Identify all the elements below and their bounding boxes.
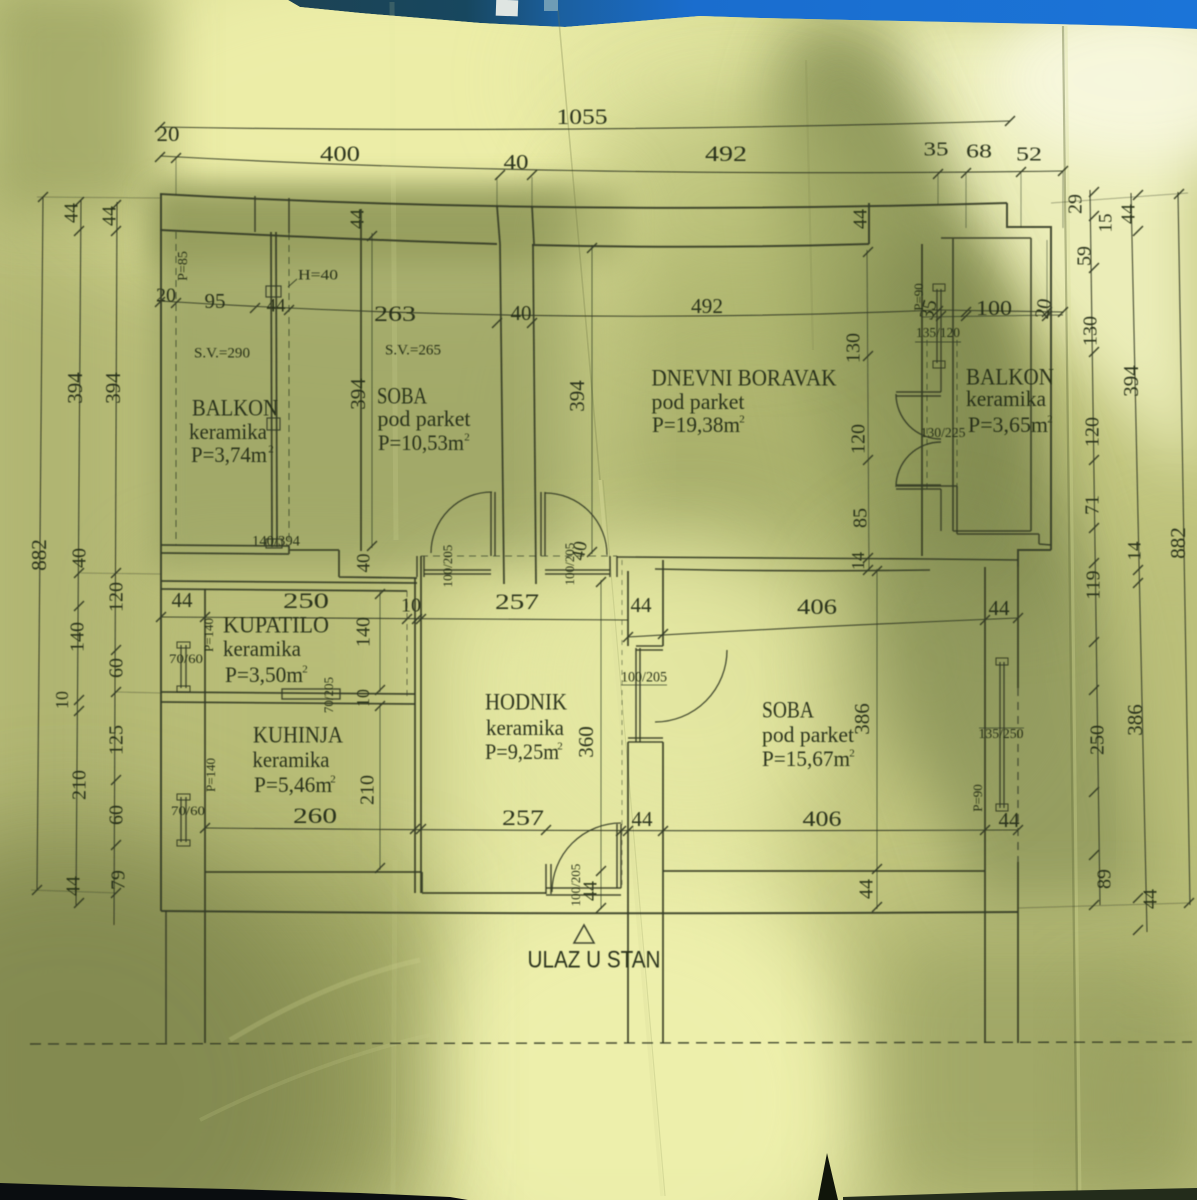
svg-text:P=90: P=90 (970, 784, 985, 812)
svg-text:44: 44 (99, 206, 121, 226)
svg-text:44: 44 (631, 593, 653, 617)
svg-text:250: 250 (283, 588, 329, 613)
svg-text:keramika: keramika (223, 636, 301, 661)
svg-text:2: 2 (330, 774, 336, 786)
svg-text:394: 394 (63, 372, 87, 404)
svg-text:40: 40 (504, 150, 529, 174)
svg-text:15: 15 (1095, 214, 1116, 233)
svg-text:P=9,25m: P=9,25m (485, 739, 559, 764)
svg-text:135/120: 135/120 (916, 326, 960, 341)
svg-text:360: 360 (574, 726, 598, 758)
svg-text:14: 14 (1124, 541, 1145, 561)
svg-text:10: 10 (401, 595, 421, 617)
svg-text:29: 29 (1065, 194, 1087, 214)
svg-text:44: 44 (856, 879, 878, 899)
svg-text:140: 140 (353, 617, 375, 647)
svg-text:100/205: 100/205 (440, 545, 455, 588)
svg-text:260: 260 (293, 803, 337, 828)
svg-text:44: 44 (61, 203, 83, 223)
svg-text:20: 20 (156, 285, 176, 307)
svg-text:40: 40 (568, 540, 592, 562)
svg-text:140/394: 140/394 (252, 533, 300, 549)
svg-text:44: 44 (1140, 889, 1162, 909)
svg-text:68: 68 (966, 141, 992, 163)
svg-text:394: 394 (1119, 365, 1143, 397)
svg-text:125: 125 (106, 725, 128, 755)
svg-text:406: 406 (797, 594, 837, 619)
svg-text:S.V.=290: S.V.=290 (194, 345, 250, 361)
svg-text:44: 44 (1118, 204, 1140, 224)
svg-text:492: 492 (691, 294, 723, 318)
svg-text:P=3,50m: P=3,50m (225, 662, 303, 687)
svg-text:P=10,53m: P=10,53m (378, 430, 464, 455)
svg-text:2: 2 (557, 741, 563, 753)
svg-text:1055: 1055 (557, 104, 608, 129)
svg-text:100/205: 100/205 (621, 669, 667, 685)
svg-text:120: 120 (106, 582, 128, 612)
svg-text:P=15,67m: P=15,67m (762, 746, 850, 771)
svg-text:2: 2 (268, 444, 274, 456)
svg-text:210: 210 (357, 775, 379, 805)
svg-text:100/205: 100/205 (568, 864, 583, 907)
svg-text:95: 95 (205, 289, 226, 313)
svg-text:pod parket: pod parket (762, 722, 854, 747)
svg-text:P=140: P=140 (201, 618, 216, 652)
svg-text:keramika: keramika (486, 715, 564, 740)
svg-text:70/60: 70/60 (171, 803, 205, 818)
svg-text:52: 52 (1016, 144, 1042, 166)
svg-text:2: 2 (849, 748, 855, 760)
svg-text:492: 492 (705, 141, 747, 166)
svg-text:HODNIK: HODNIK (485, 689, 567, 714)
svg-text:44: 44 (347, 209, 369, 229)
svg-text:89: 89 (1094, 869, 1116, 889)
svg-text:44: 44 (63, 876, 85, 896)
svg-text:P=3,74m: P=3,74m (191, 442, 267, 467)
svg-text:70/60: 70/60 (169, 651, 203, 666)
svg-text:2: 2 (1047, 414, 1053, 426)
svg-text:P=140: P=140 (203, 758, 218, 792)
svg-text:40: 40 (511, 301, 532, 325)
svg-text:386: 386 (850, 703, 874, 735)
svg-text:2: 2 (302, 664, 308, 676)
svg-text:10: 10 (353, 689, 373, 707)
svg-text:59: 59 (1074, 246, 1096, 266)
svg-text:P=90: P=90 (911, 283, 926, 311)
svg-text:keramika: keramika (966, 386, 1046, 411)
svg-text:S.V.=265: S.V.=265 (385, 342, 441, 358)
svg-text:120: 120 (848, 424, 870, 454)
svg-text:394: 394 (101, 372, 125, 404)
svg-text:394: 394 (346, 378, 370, 410)
svg-text:60: 60 (106, 805, 128, 825)
svg-text:135/250: 135/250 (979, 727, 1024, 742)
svg-text:KUHINJA: KUHINJA (253, 722, 343, 747)
svg-text:130: 130 (843, 333, 865, 363)
svg-text:70/205: 70/205 (321, 677, 336, 713)
svg-text:10: 10 (52, 691, 72, 709)
svg-text:P=5,46m: P=5,46m (254, 772, 332, 797)
svg-text:40: 40 (353, 554, 374, 573)
svg-text:14: 14 (848, 552, 868, 570)
svg-text:257: 257 (495, 589, 539, 614)
svg-text:keramika: keramika (189, 419, 267, 444)
svg-text:400: 400 (320, 141, 360, 166)
svg-text:SOBA: SOBA (762, 697, 814, 722)
svg-text:KUPATILO: KUPATILO (223, 612, 329, 637)
svg-text:79: 79 (108, 870, 130, 890)
svg-text:keramika: keramika (253, 747, 330, 772)
svg-text:120: 120 (1082, 417, 1104, 447)
svg-text:85: 85 (850, 508, 872, 528)
svg-text:386: 386 (1123, 704, 1147, 736)
svg-text:SOBA: SOBA (377, 383, 427, 408)
svg-text:71: 71 (1082, 495, 1104, 515)
svg-text:P=3,65m: P=3,65m (968, 412, 1048, 437)
svg-text:44: 44 (989, 596, 1011, 620)
svg-text:130: 130 (1080, 316, 1102, 346)
svg-text:H=40: H=40 (298, 267, 338, 283)
svg-text:44: 44 (632, 807, 654, 831)
svg-text:20: 20 (157, 122, 180, 146)
svg-text:P=85: P=85 (176, 251, 191, 281)
svg-text:20: 20 (1031, 297, 1056, 321)
svg-text:263: 263 (374, 301, 416, 326)
svg-text:60: 60 (106, 658, 128, 678)
svg-text:882: 882 (27, 539, 51, 571)
svg-text:257: 257 (502, 805, 544, 830)
svg-text:P=19,38m: P=19,38m (652, 412, 740, 437)
svg-text:210: 210 (69, 770, 91, 800)
svg-text:406: 406 (803, 806, 842, 831)
svg-text:40: 40 (69, 548, 91, 568)
svg-text:394: 394 (565, 380, 589, 412)
svg-text:44: 44 (172, 588, 194, 612)
svg-text:44: 44 (850, 209, 872, 229)
svg-text:DNEVNI BORAVAK: DNEVNI BORAVAK (652, 365, 837, 390)
svg-text:140: 140 (67, 622, 89, 652)
svg-text:2: 2 (739, 414, 745, 426)
svg-text:119: 119 (1083, 570, 1105, 599)
svg-text:pod parket: pod parket (652, 389, 745, 414)
svg-text:BALKON: BALKON (192, 395, 278, 420)
svg-text:pod parket: pod parket (378, 406, 471, 431)
svg-text:882: 882 (1166, 527, 1190, 559)
svg-text:ULAZ U STAN: ULAZ U STAN (528, 946, 661, 973)
svg-text:250: 250 (1087, 725, 1109, 755)
svg-text:2: 2 (464, 432, 470, 444)
svg-text:35: 35 (924, 139, 949, 161)
